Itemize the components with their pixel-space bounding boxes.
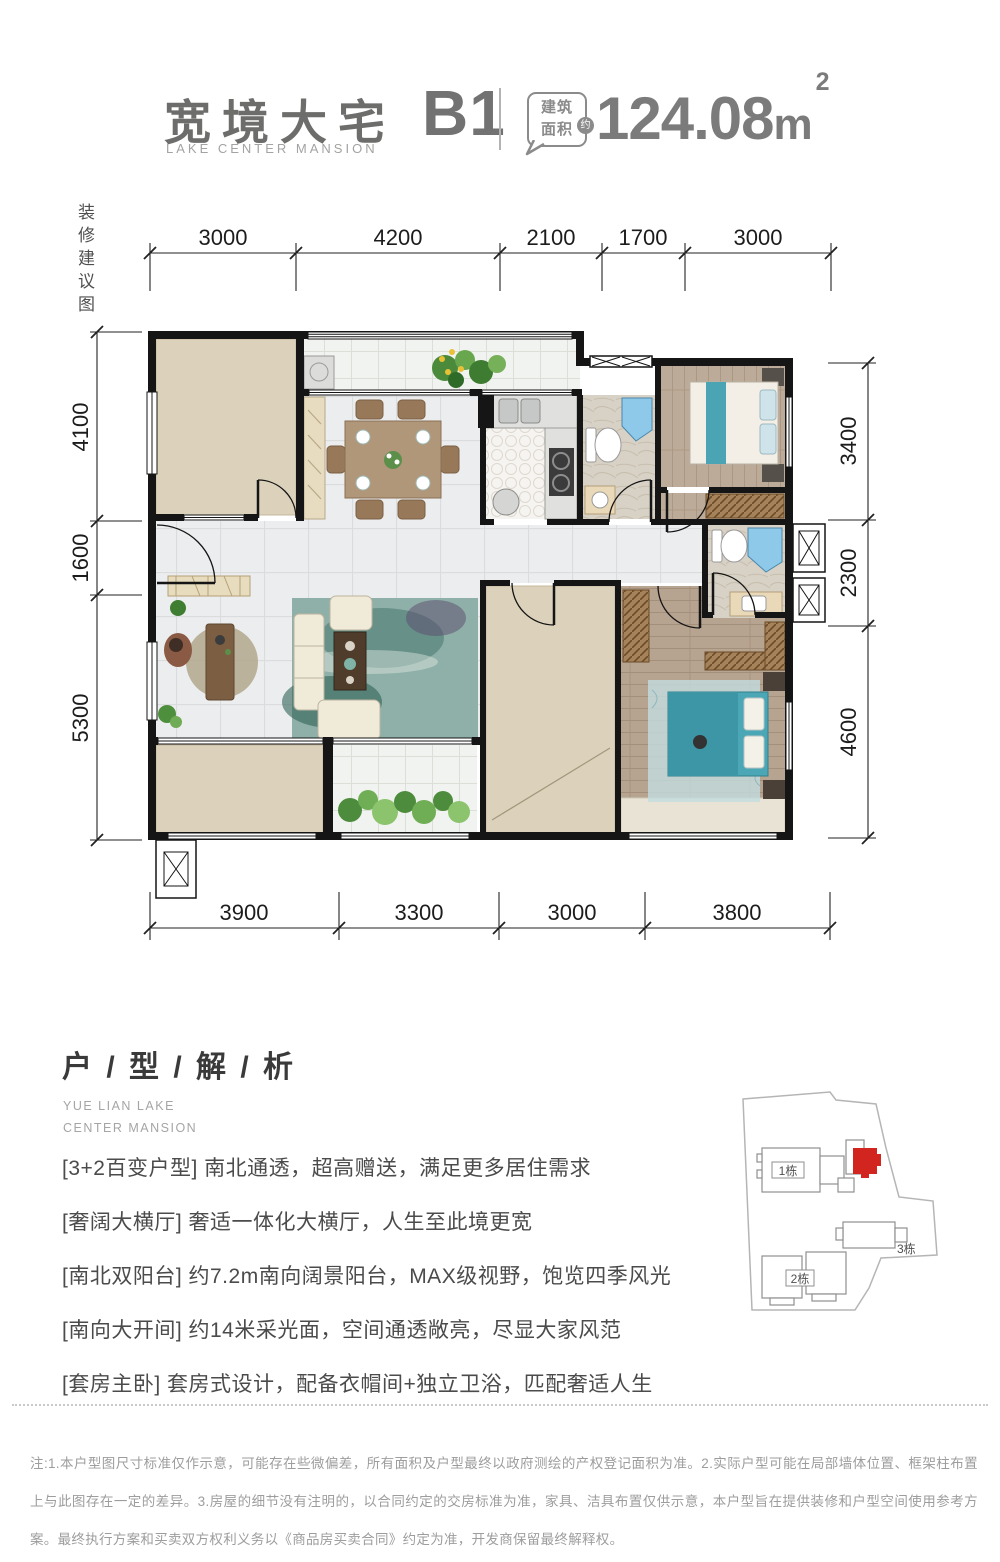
master-bay-window [621, 798, 785, 833]
shaft-bottom-left [156, 840, 196, 898]
wardrobe-top [705, 652, 767, 670]
dim-left-ticks [90, 326, 142, 846]
kitchen-sink [499, 399, 518, 423]
corridor-floor [480, 525, 702, 583]
analysis-subheading: YUE LIAN LAKE CENTER MANSION [63, 1095, 197, 1139]
dim-top-1: 3000 [199, 225, 248, 250]
dim-top-4: 1700 [619, 225, 668, 250]
site-map: 1栋 3栋 2栋 [725, 1080, 1000, 1325]
stove [549, 448, 574, 496]
dining-cabinet [304, 397, 325, 519]
dim-left-1: 4100 [68, 403, 93, 452]
wardrobe-bedroom2 [706, 494, 784, 518]
ac-ledge-1 [793, 524, 825, 572]
analysis-point: [南向大开间] 约14米采光面，空间通透敞亮，尽显大家风范 [62, 1302, 722, 1356]
dim-bottom-1: 3900 [220, 900, 269, 925]
wardrobe-right [765, 622, 785, 670]
kitchen-appliance [493, 489, 519, 515]
floor-plan: 3000 4200 2100 1700 3000 4100 1600 5300 … [0, 0, 1000, 1000]
dim-left-2: 1600 [68, 534, 93, 583]
nightstand-master [763, 672, 785, 691]
sofa-main [294, 614, 324, 710]
analysis-heading: 户 / 型 / 解 / 析 [62, 1042, 296, 1086]
toilet1 [595, 428, 621, 462]
analysis-point: [3+2百变户型] 南北通透，超高赠送，满足更多居住需求 [62, 1140, 722, 1194]
dim-bottom-3: 3000 [548, 900, 597, 925]
dim-right-1: 3400 [836, 417, 861, 466]
analysis-subheading-line2: CENTER MANSION [63, 1117, 197, 1139]
shoe-bench [168, 576, 250, 596]
dim-bottom-4: 3800 [713, 900, 762, 925]
dim-bottom-2: 3300 [395, 900, 444, 925]
ac-ledge-2 [793, 578, 825, 622]
dim-top-3: 2100 [527, 225, 576, 250]
dim-top-ticks [144, 243, 837, 291]
armchair [330, 596, 372, 630]
dim-right-2: 2300 [836, 549, 861, 598]
building-1-label: 1栋 [779, 1163, 798, 1178]
dim-top-2: 4200 [374, 225, 423, 250]
analysis-subheading-line1: YUE LIAN LAKE [63, 1095, 197, 1117]
wardrobe-left [623, 590, 649, 662]
analysis-points: [3+2百变户型] 南北通透，超高赠送，满足更多居住需求 [奢阔大横厅] 奢适一… [62, 1140, 722, 1410]
toilet2 [721, 530, 747, 562]
loveseat [318, 700, 380, 740]
dotted-divider [12, 1404, 988, 1406]
dim-right-3: 4600 [836, 708, 861, 757]
analysis-point: [套房主卧] 套房式设计，配备衣帽间+独立卫浴，匹配奢适人生 [62, 1356, 722, 1410]
ac-niche-top [590, 356, 652, 367]
dim-left-3: 5300 [68, 694, 93, 743]
bedroom-north-floor [156, 339, 296, 515]
highlighted-unit [853, 1148, 881, 1178]
disclaimer-text: 注:1.本户型图尺寸标准仅作示意，可能存在些微偏差，所有面积及户型最终以政府测绘… [30, 1445, 978, 1559]
gift-space-floor [156, 745, 323, 833]
building-2-label: 2栋 [791, 1271, 810, 1286]
analysis-point: [奢阔大横厅] 奢适一体化大横厅，人生至此境更宽 [62, 1194, 722, 1248]
washing-machine [304, 356, 334, 389]
analysis-point: [南北双阳台] 约7.2m南向阔景阳台，MAX级视野，饱览四季风光 [62, 1248, 722, 1302]
building-3-label: 3栋 [897, 1241, 916, 1256]
dim-top-5: 3000 [734, 225, 783, 250]
flex-room-floor [486, 586, 615, 833]
entry-plant [170, 600, 186, 616]
